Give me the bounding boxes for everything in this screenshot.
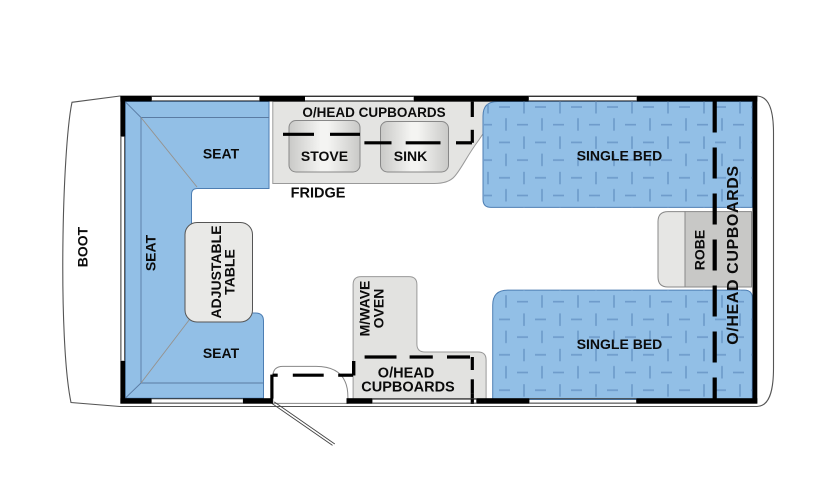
svg-text:BOOT: BOOT: [75, 226, 91, 267]
svg-text:SINGLE BED: SINGLE BED: [577, 147, 663, 163]
svg-text:O/HEAD CUPBOARDS: O/HEAD CUPBOARDS: [725, 165, 742, 344]
svg-text:SEAT: SEAT: [203, 345, 240, 361]
svg-text:CUPBOARDS: CUPBOARDS: [361, 380, 455, 396]
svg-text:ROBE: ROBE: [692, 230, 708, 270]
svg-text:STOVE: STOVE: [301, 148, 348, 164]
svg-text:M/WAVEOVEN: M/WAVEOVEN: [356, 281, 386, 337]
svg-text:SEAT: SEAT: [143, 234, 159, 271]
svg-text:SINGLE BED: SINGLE BED: [577, 336, 663, 352]
svg-text:SEAT: SEAT: [203, 146, 240, 162]
svg-text:FRIDGE: FRIDGE: [291, 186, 346, 202]
svg-text:SINK: SINK: [394, 148, 427, 164]
svg-text:O/HEAD CUPBOARDS: O/HEAD CUPBOARDS: [302, 105, 445, 120]
